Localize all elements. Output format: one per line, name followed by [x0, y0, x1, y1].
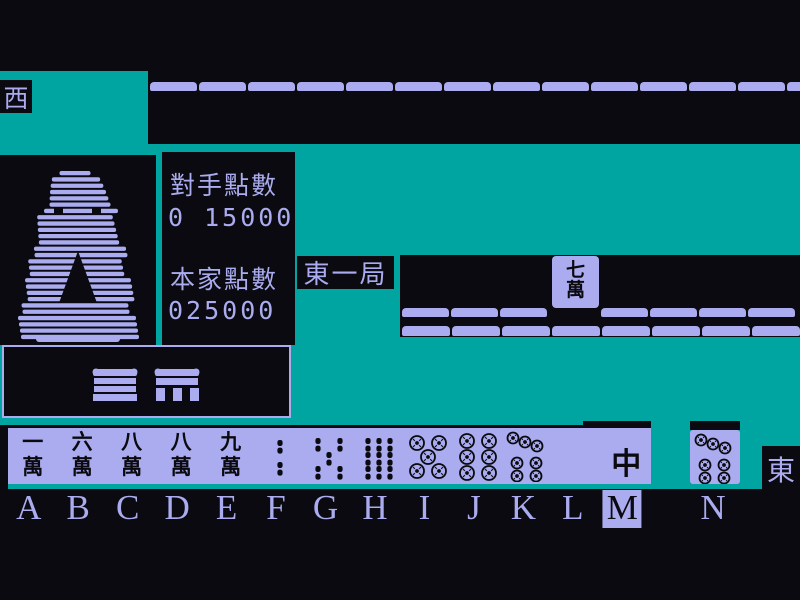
- wall-row: [402, 326, 800, 336]
- round-label: 東一局: [303, 254, 387, 291]
- wall-tile-back: [500, 308, 547, 317]
- hand-tile-F[interactable]: [255, 428, 304, 484]
- opponent-tile-back: [297, 82, 344, 91]
- sou-9-pips: [357, 430, 401, 482]
- wall-tile-back: [502, 326, 550, 336]
- wall-tile-back: [451, 308, 498, 317]
- tile-face-label: 六萬: [72, 431, 93, 481]
- wall-row: [601, 308, 797, 317]
- tray-box: [2, 345, 291, 418]
- tile-key-J[interactable]: J: [467, 490, 481, 525]
- tile-mountain-graphic: [0, 155, 156, 345]
- wall-tile-back: [402, 308, 449, 317]
- tile-key-G[interactable]: G: [313, 490, 338, 525]
- hand-tile-I[interactable]: [404, 428, 453, 484]
- hand-tile-L[interactable]: [552, 428, 601, 484]
- opponent-wind-box: 西: [0, 80, 32, 113]
- wall-tile-back: [552, 326, 600, 336]
- pin-7-pips: [693, 432, 737, 484]
- tile-mountain-panel: [0, 155, 156, 345]
- pin-5-pips: [406, 430, 450, 482]
- opponent-tile-row: [150, 82, 800, 91]
- self-wind-box: 東: [762, 446, 800, 492]
- opponent-score-value: 0 15000: [168, 203, 294, 232]
- opponent-wind-label: 西: [3, 79, 28, 115]
- wall-tile-back: [702, 326, 750, 336]
- opponent-tile-back: [346, 82, 393, 91]
- tile-face-label: 九萬: [220, 431, 241, 481]
- hand-tile-E[interactable]: 九萬: [206, 428, 255, 484]
- hand-tile-D[interactable]: 八萬: [156, 428, 205, 484]
- opponent-tile-back: [444, 82, 491, 91]
- round-indicator: 東一局: [297, 256, 394, 289]
- opponent-tile-back: [395, 82, 442, 91]
- hand-tile-H[interactable]: [354, 428, 403, 484]
- tile-key-M[interactable]: M: [603, 490, 642, 528]
- tile-key-D[interactable]: D: [164, 490, 189, 525]
- discard-tile-label: 七萬: [552, 261, 599, 301]
- opponent-score-label: 對手點數: [170, 166, 278, 202]
- self-score-value: 025000: [168, 296, 276, 325]
- game-screen: 西 對手點數 0 15000 本家點數 025000 東一局: [0, 0, 800, 600]
- wall-tile-back: [650, 308, 697, 317]
- tile-key-C[interactable]: C: [116, 490, 139, 525]
- tile-key-I[interactable]: I: [419, 490, 431, 525]
- tile-key-B[interactable]: B: [67, 490, 90, 525]
- opponent-tile-back: [787, 82, 800, 91]
- tile-face-label: 中: [611, 439, 641, 483]
- hand-tile-C[interactable]: 八萬: [107, 428, 156, 484]
- pin-7-pips: [505, 430, 549, 482]
- opponent-tile-back: [689, 82, 736, 91]
- wall-row: [402, 308, 549, 317]
- tile-key-A[interactable]: A: [16, 490, 41, 525]
- pin-6-pips: [456, 430, 500, 482]
- self-wind-label: 東: [767, 449, 795, 489]
- player-hand: 一萬六萬八萬八萬九萬中: [8, 428, 651, 484]
- score-panel: 對手點數 0 15000 本家點數 025000: [162, 152, 295, 345]
- self-score-label: 本家點數: [170, 260, 278, 296]
- hand-tile-J[interactable]: [453, 428, 502, 484]
- tile-face-label: 八萬: [121, 431, 142, 481]
- wall-tile-back: [699, 308, 746, 317]
- hand-tile-M[interactable]: 中: [602, 428, 651, 484]
- tile-key-L[interactable]: L: [562, 490, 583, 525]
- tile-stack-icon: [90, 365, 140, 403]
- wall-tile-back: [602, 326, 650, 336]
- wall-tile-back: [748, 308, 795, 317]
- discard-char: 七: [566, 261, 585, 281]
- hand-tile-B[interactable]: 六萬: [57, 428, 106, 484]
- hand-tile-K[interactable]: [503, 428, 552, 484]
- drawn-tile[interactable]: [690, 430, 740, 484]
- discard-area: [400, 255, 800, 337]
- tile-key-E[interactable]: E: [216, 490, 237, 525]
- opponent-tile-back: [738, 82, 785, 91]
- opponent-tile-back: [150, 82, 197, 91]
- selected-tile-shadow: [583, 421, 651, 428]
- hand-tile-A[interactable]: 一萬: [8, 428, 57, 484]
- opponent-tile-back: [199, 82, 246, 91]
- wall-tile-back: [402, 326, 450, 336]
- hand-tile-G[interactable]: [305, 428, 354, 484]
- tile-key-H[interactable]: H: [362, 490, 387, 525]
- tile-key-K[interactable]: K: [511, 490, 536, 525]
- tile-face-label: 八萬: [171, 431, 192, 481]
- tile-key-N[interactable]: N: [700, 490, 725, 525]
- wall-tile-back: [452, 326, 500, 336]
- wall-tile-back: [752, 326, 800, 336]
- hand-left-edge: [0, 425, 8, 489]
- opponent-tile-back: [591, 82, 638, 91]
- tile-face-label: 一萬: [22, 431, 43, 481]
- wall-tile-back: [601, 308, 648, 317]
- opponent-tile-back: [493, 82, 540, 91]
- tile-table-icon: [152, 365, 202, 403]
- opponent-tile-back: [248, 82, 295, 91]
- drawn-tile-shadow: [690, 421, 740, 430]
- discard-tile: 七萬: [552, 256, 599, 308]
- opponent-tile-back: [542, 82, 589, 91]
- wall-tile-back: [652, 326, 700, 336]
- sou-2-pips: [258, 430, 302, 482]
- opponent-tile-back: [640, 82, 687, 91]
- opponent-area: [148, 71, 800, 144]
- tile-key-F[interactable]: F: [266, 490, 285, 525]
- sou-5-pips: [307, 430, 351, 482]
- discard-char: 萬: [566, 281, 585, 301]
